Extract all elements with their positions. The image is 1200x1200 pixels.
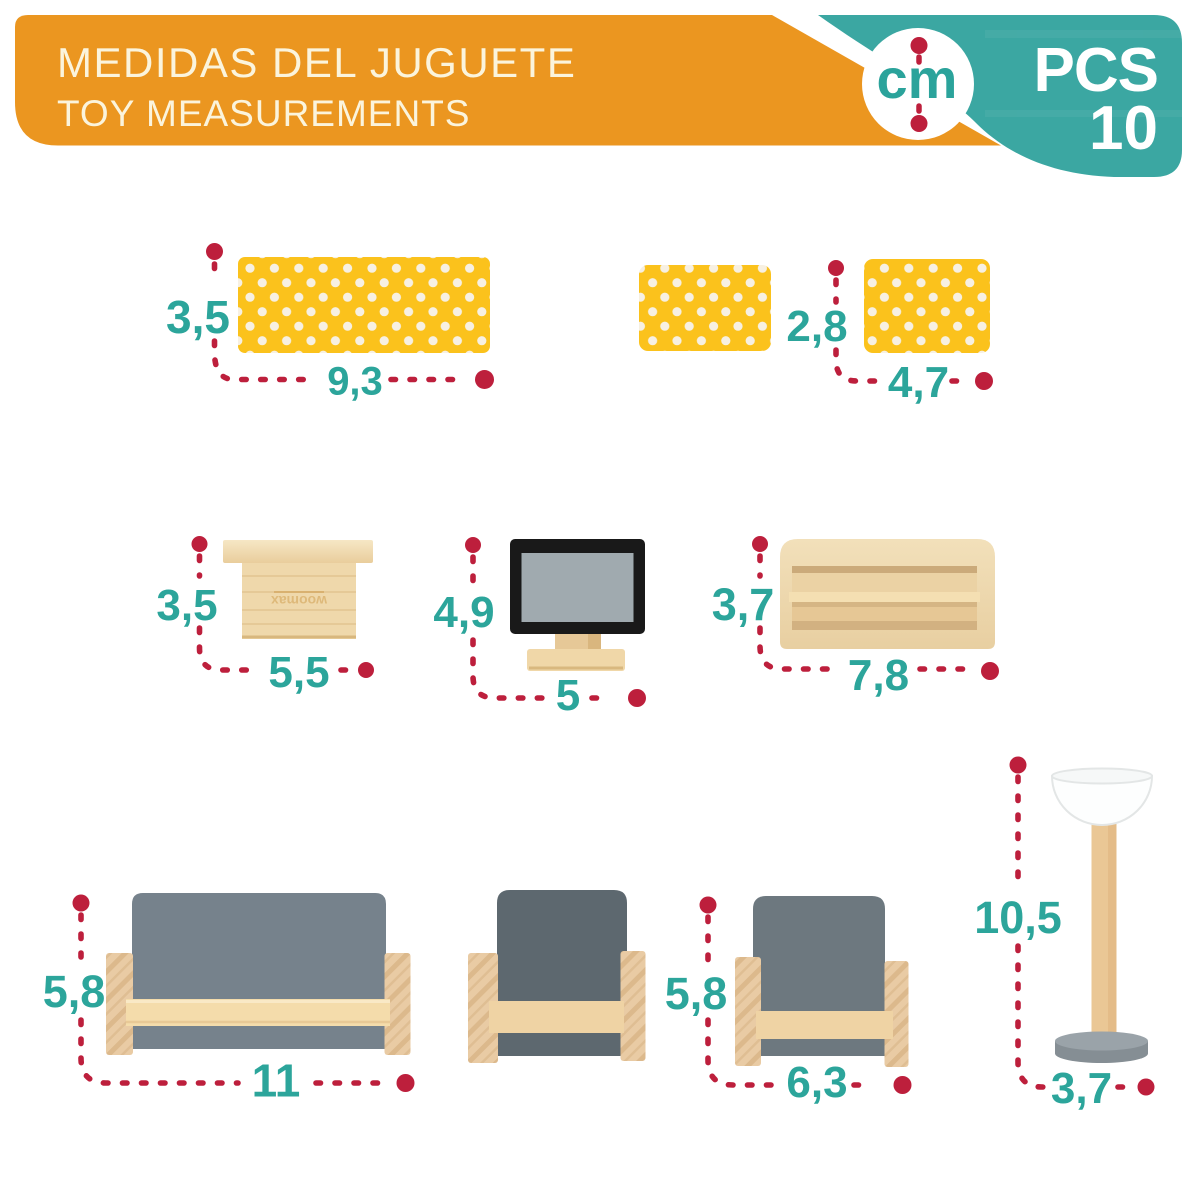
svg-text:3,7: 3,7 (712, 579, 775, 630)
svg-text:3,7: 3,7 (1051, 1064, 1112, 1113)
svg-text:10,5: 10,5 (974, 892, 1062, 943)
svg-text:woomax: woomax (271, 593, 328, 609)
svg-text:6,3: 6,3 (786, 1058, 847, 1107)
svg-text:MEDIDAS DEL JUGUETE: MEDIDAS DEL JUGUETE (57, 39, 576, 86)
svg-text:4,9: 4,9 (433, 588, 494, 637)
svg-text:TOY MEASUREMENTS: TOY MEASUREMENTS (57, 93, 470, 134)
svg-text:10: 10 (1089, 94, 1158, 163)
svg-text:5,5: 5,5 (268, 648, 329, 697)
svg-text:2,8: 2,8 (786, 302, 847, 351)
svg-text:4,7: 4,7 (888, 358, 949, 407)
svg-text:5,8: 5,8 (665, 968, 728, 1019)
svg-text:3,5: 3,5 (166, 291, 230, 343)
svg-text:9,3: 9,3 (327, 360, 383, 404)
svg-text:5,8: 5,8 (43, 966, 106, 1017)
svg-text:7,8: 7,8 (848, 651, 909, 700)
svg-text:5: 5 (556, 671, 580, 720)
svg-text:11: 11 (252, 1055, 301, 1107)
svg-text:3,5: 3,5 (156, 581, 217, 630)
